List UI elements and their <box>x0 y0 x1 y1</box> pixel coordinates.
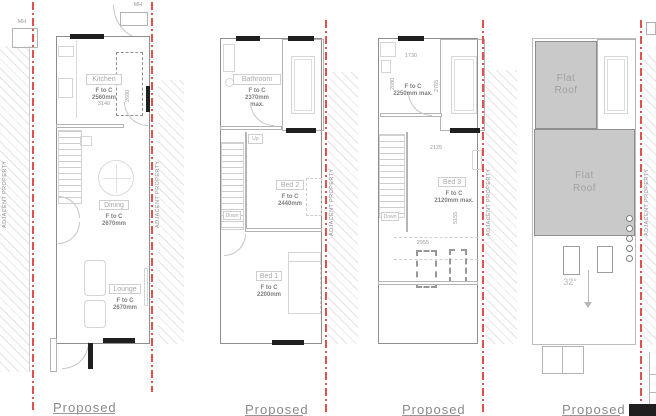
dimension-1730: 1730 <box>400 54 422 60</box>
rear-outrigger-divider <box>562 346 563 374</box>
porch-wall <box>50 338 57 372</box>
plan2-rooflight <box>291 56 315 114</box>
soil-pipe-circle <box>626 255 633 262</box>
proposed-floor-plans-drawing: ADJACENT PROPERTY MH MH 2680 Kitchen F t… <box>0 0 656 416</box>
plan1-internal-wall <box>56 124 124 128</box>
front-door-frame <box>88 343 93 369</box>
boundary-line <box>32 2 34 410</box>
staircase <box>379 134 405 218</box>
lounge-room-label: Lounge <box>109 284 141 294</box>
bed2-ceiling-height: F to C 2440mm <box>274 194 306 208</box>
plan1-caption: Proposed <box>53 400 115 414</box>
boundary-line <box>640 20 642 412</box>
adjacent-property-hatch <box>158 80 184 344</box>
dimension-5155: 5155 <box>453 198 459 224</box>
roof-pitch-label: 32° <box>558 278 582 287</box>
adjacent-property-hatch <box>328 72 358 344</box>
boundary-line <box>325 20 327 412</box>
dimension-2765: 2765 <box>434 62 440 92</box>
soil-pipe-circle <box>626 235 633 242</box>
kitchen-hob <box>58 78 73 98</box>
roof-slope-arrow-line <box>588 270 589 302</box>
soil-pipe-circle <box>626 215 633 222</box>
roof-edge-window <box>288 36 314 41</box>
manhole-left <box>12 28 38 48</box>
title-block-line <box>649 374 656 375</box>
dining-ceiling-height: F to C 2670mm <box>97 214 131 228</box>
bathroom-room-label: Bathroom <box>233 74 281 85</box>
stairs-up-label: Up <box>248 134 263 144</box>
pitched-roof-rooflight <box>597 246 613 273</box>
plan3-internal-wall <box>380 113 442 117</box>
shower-fixture <box>380 42 396 57</box>
plan2-caption: Proposed <box>245 402 303 416</box>
manhole-right <box>120 12 148 26</box>
bed2-room-label: Bed 2 <box>276 180 304 190</box>
plan4-rooflight <box>604 56 628 114</box>
bed2-window <box>286 128 316 133</box>
bed1-ceiling-height: F to C 2200mm <box>252 285 286 299</box>
bed-pillow <box>288 252 321 262</box>
stairs-down-label: Down <box>223 211 241 220</box>
side-window <box>146 86 150 112</box>
rooflight-inner <box>454 59 474 111</box>
flat-roof-upper: Flat Roof <box>535 41 597 129</box>
adjacent-property-hatch <box>643 55 656 345</box>
flat-roof-label: Flat Roof <box>549 73 583 98</box>
soil-pipe-circle <box>626 225 633 232</box>
manhole-label: MH <box>131 3 145 9</box>
plan2-internal-wall <box>220 126 282 130</box>
dining-table <box>98 160 134 196</box>
sofa <box>84 300 106 328</box>
rooflight-inner <box>294 59 312 111</box>
kitchen-counter-line <box>76 40 77 118</box>
title-block-fragment <box>646 22 656 35</box>
table-line <box>103 178 131 179</box>
plan3-rear-wall <box>378 281 478 285</box>
stairs-down-label: Down <box>381 212 399 221</box>
adjacent-property-label: ADJACENT PROPERTY <box>2 128 8 228</box>
title-block-line <box>649 392 656 393</box>
boundary-line <box>482 20 484 412</box>
roof-slope-arrow-icon <box>584 302 592 308</box>
radiator <box>144 268 148 306</box>
head-height-line <box>394 237 478 238</box>
adjacent-property-hatch <box>485 70 517 344</box>
dining-room-label: Dining <box>99 200 129 210</box>
bed3-room-label: Bed 3 <box>438 177 466 187</box>
stair-wall <box>245 132 247 232</box>
dimension-2125: 2125 <box>426 146 446 152</box>
dimension-2955: 2955 <box>412 241 434 247</box>
ensuite-window <box>398 36 424 41</box>
flat-roof-lower: Flat Roof <box>534 129 635 236</box>
plan2-internal-wall <box>245 228 322 232</box>
sofa <box>84 260 106 296</box>
plan4-caption: Proposed <box>562 402 620 416</box>
stair-wall <box>406 132 408 232</box>
pitched-roof-rooflight <box>563 246 580 275</box>
kitchen-window <box>70 34 104 39</box>
bathroom-window <box>236 36 260 41</box>
boundary-line <box>151 2 153 392</box>
dimension-3140: 3140 <box>92 102 116 108</box>
wardrobe-dashed <box>306 178 322 216</box>
plan3-caption: Proposed <box>402 402 460 416</box>
front-window <box>103 338 135 343</box>
front-door-arc <box>62 342 89 369</box>
lounge-ceiling-height: F to C 2670mm <box>107 298 143 312</box>
kitchen-room-label: Kitchen <box>86 74 122 85</box>
soil-pipe-circle <box>626 245 633 252</box>
bed1-room-label: Bed 1 <box>256 271 282 281</box>
table-line <box>116 165 117 193</box>
radiator <box>472 150 482 170</box>
bed1-window <box>272 340 304 345</box>
bed3-window <box>450 128 480 133</box>
rear-outrigger <box>542 346 584 374</box>
dimension-2680: 2680 <box>125 68 131 102</box>
rooflight-dashed <box>449 249 467 283</box>
bath-fixture <box>223 44 235 72</box>
flat-roof-label: Flat Roof <box>565 170 605 195</box>
staircase <box>58 130 82 204</box>
plan3-rooflight <box>451 56 477 114</box>
title-block-black-mark <box>629 404 656 416</box>
kitchen-sink <box>58 46 74 57</box>
manhole-label: MH <box>15 20 29 26</box>
rooflight-inner <box>607 59 625 111</box>
under-stair-cupboard <box>80 136 92 146</box>
